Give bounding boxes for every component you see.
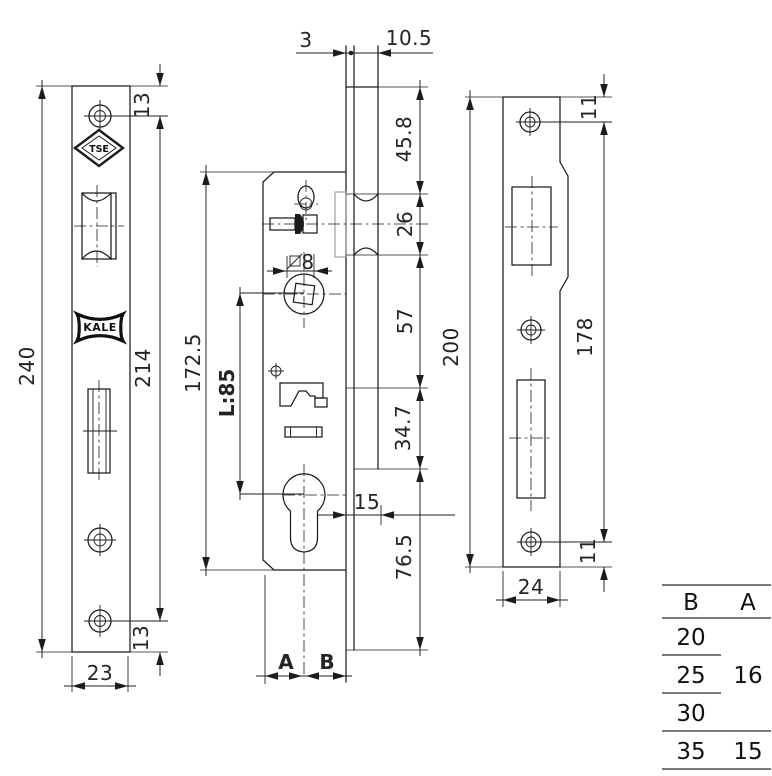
table-cell-b1: 20	[676, 625, 705, 651]
dim-b-label: B	[319, 650, 334, 674]
table-cell-a-last: 15	[733, 739, 762, 765]
square-dimension: 8	[267, 250, 332, 278]
position-mark	[268, 363, 284, 379]
tse-logo: TSE	[75, 130, 123, 166]
faceplate-slot	[83, 380, 117, 482]
faceplate-outline	[72, 86, 130, 652]
latch-opening	[505, 176, 558, 278]
latch-housing	[335, 192, 346, 257]
roller-cutout	[74, 185, 124, 267]
dim-case-length: 172.5	[181, 333, 205, 393]
dim-strike-bottom-offset: 11	[576, 538, 600, 564]
strike-dimensions: 200 178 11 11 24	[439, 74, 612, 607]
screw-hole	[517, 316, 545, 344]
tse-logo-text: TSE	[89, 144, 109, 155]
table-cell-b2: 25	[676, 663, 705, 689]
dim-latch-height: 26	[393, 211, 417, 237]
dim-bottom-zone: 76.5	[392, 534, 416, 581]
dim-front-gap: 15	[354, 490, 380, 514]
dim-plate-thickness: 3	[299, 28, 312, 52]
dim-spindle-zone: 34.7	[391, 405, 415, 452]
dim-top-to-latch: 45.8	[392, 116, 416, 163]
dim-a-label: A	[278, 650, 294, 674]
stepped-cutout	[280, 383, 323, 406]
body-top-dimensions: 3 10.5	[296, 26, 433, 57]
lock-body-view: 8 3 10.5	[181, 26, 455, 684]
centre-distance-dimension: L:85	[215, 287, 304, 500]
stepped-cutout-tab	[315, 398, 327, 407]
dim-strike-length: 200	[439, 327, 463, 367]
table-cell-b4: 35	[676, 739, 705, 765]
roller-end-arc	[354, 194, 378, 201]
dim-faceplate-hole-span: 214	[131, 348, 155, 388]
kale-logo: KALE	[77, 314, 123, 341]
screw-hole	[84, 100, 168, 132]
dim-case-offset: 10.5	[386, 26, 433, 50]
table-header-a: A	[740, 590, 756, 616]
kale-logo-text: KALE	[83, 321, 117, 334]
body-chain-dimensions: 45.8 26 57 34.7 76.5	[346, 80, 428, 656]
body-slot	[285, 427, 322, 437]
dim-spindle-square: 8	[301, 250, 314, 274]
dim-faceplate-top-offset: 13	[130, 92, 154, 118]
dim-faceplate-width: 23	[87, 661, 113, 685]
lock-drawing-canvas: TSE KALE	[0, 0, 772, 776]
square-symbol-icon	[287, 254, 302, 269]
dim-strike-width: 24	[518, 575, 544, 599]
table-cell-a-shared: 16	[733, 663, 762, 689]
screw-hole	[84, 605, 168, 637]
dim-faceplate-bottom-offset: 13	[129, 625, 153, 651]
deadbolt-opening	[509, 368, 553, 511]
dim-centres: L:85	[215, 369, 239, 418]
table-header-b: B	[683, 590, 699, 616]
strike-plate-view: 200 178 11 11 24	[439, 74, 612, 607]
dim-faceplate-length: 240	[15, 346, 39, 386]
dim-latch-to-spindle: 57	[393, 308, 417, 334]
faceplate-dimensions: 240 214 13 13 23	[15, 64, 168, 692]
dim-strike-top-offset: 11	[577, 94, 601, 120]
dim-strike-hole-span: 178	[573, 317, 597, 357]
roller-end-arc	[354, 248, 378, 255]
table-cell-b3: 30	[676, 701, 705, 727]
size-table: B A 20 25 16 30 35 15	[662, 585, 771, 769]
faceplate-front-view: TSE KALE	[15, 64, 168, 692]
technical-drawing-page: TSE KALE	[0, 0, 772, 776]
screw-hole	[84, 524, 116, 556]
